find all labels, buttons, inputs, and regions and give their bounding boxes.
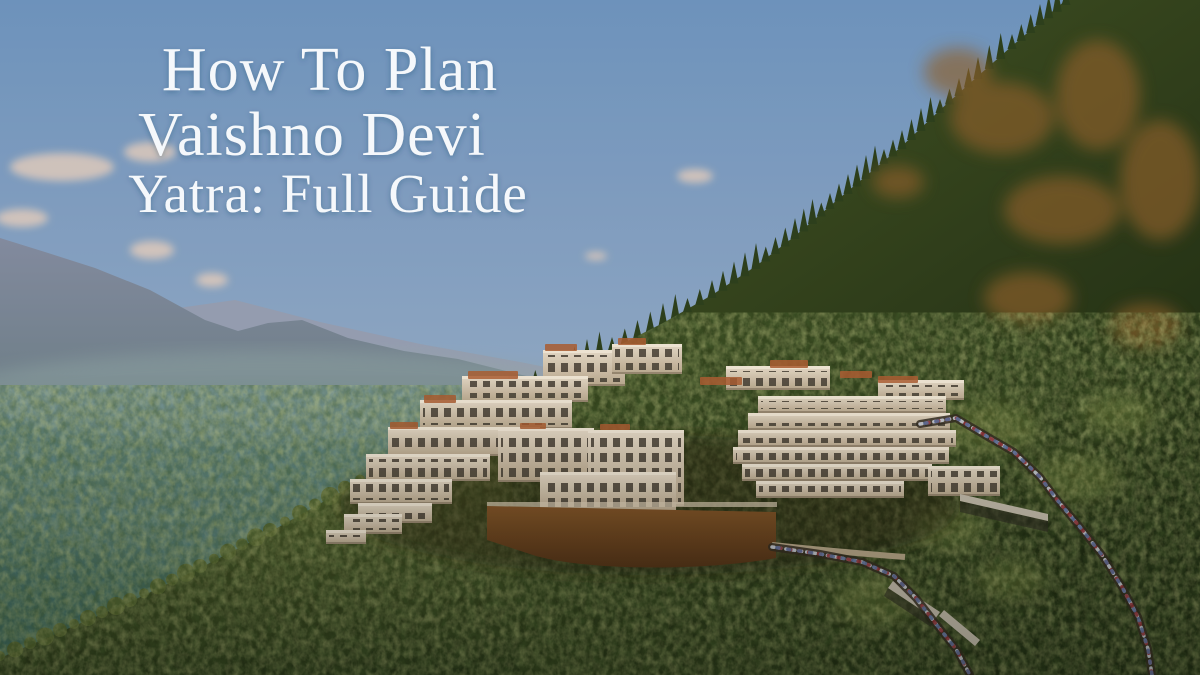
thumbnail-image: How To Plan Vaishno Devi Yatra: Full Gui… — [0, 0, 1200, 675]
page-title: How To Plan Vaishno Devi Yatra: Full Gui… — [128, 36, 527, 224]
scene-svg: How To Plan Vaishno Devi Yatra: Full Gui… — [0, 0, 1200, 675]
title-line-3: Yatra: Full Guide — [128, 163, 527, 224]
title-line-2: Vaishno Devi — [138, 101, 486, 169]
title-line-1: How To Plan — [162, 36, 498, 104]
